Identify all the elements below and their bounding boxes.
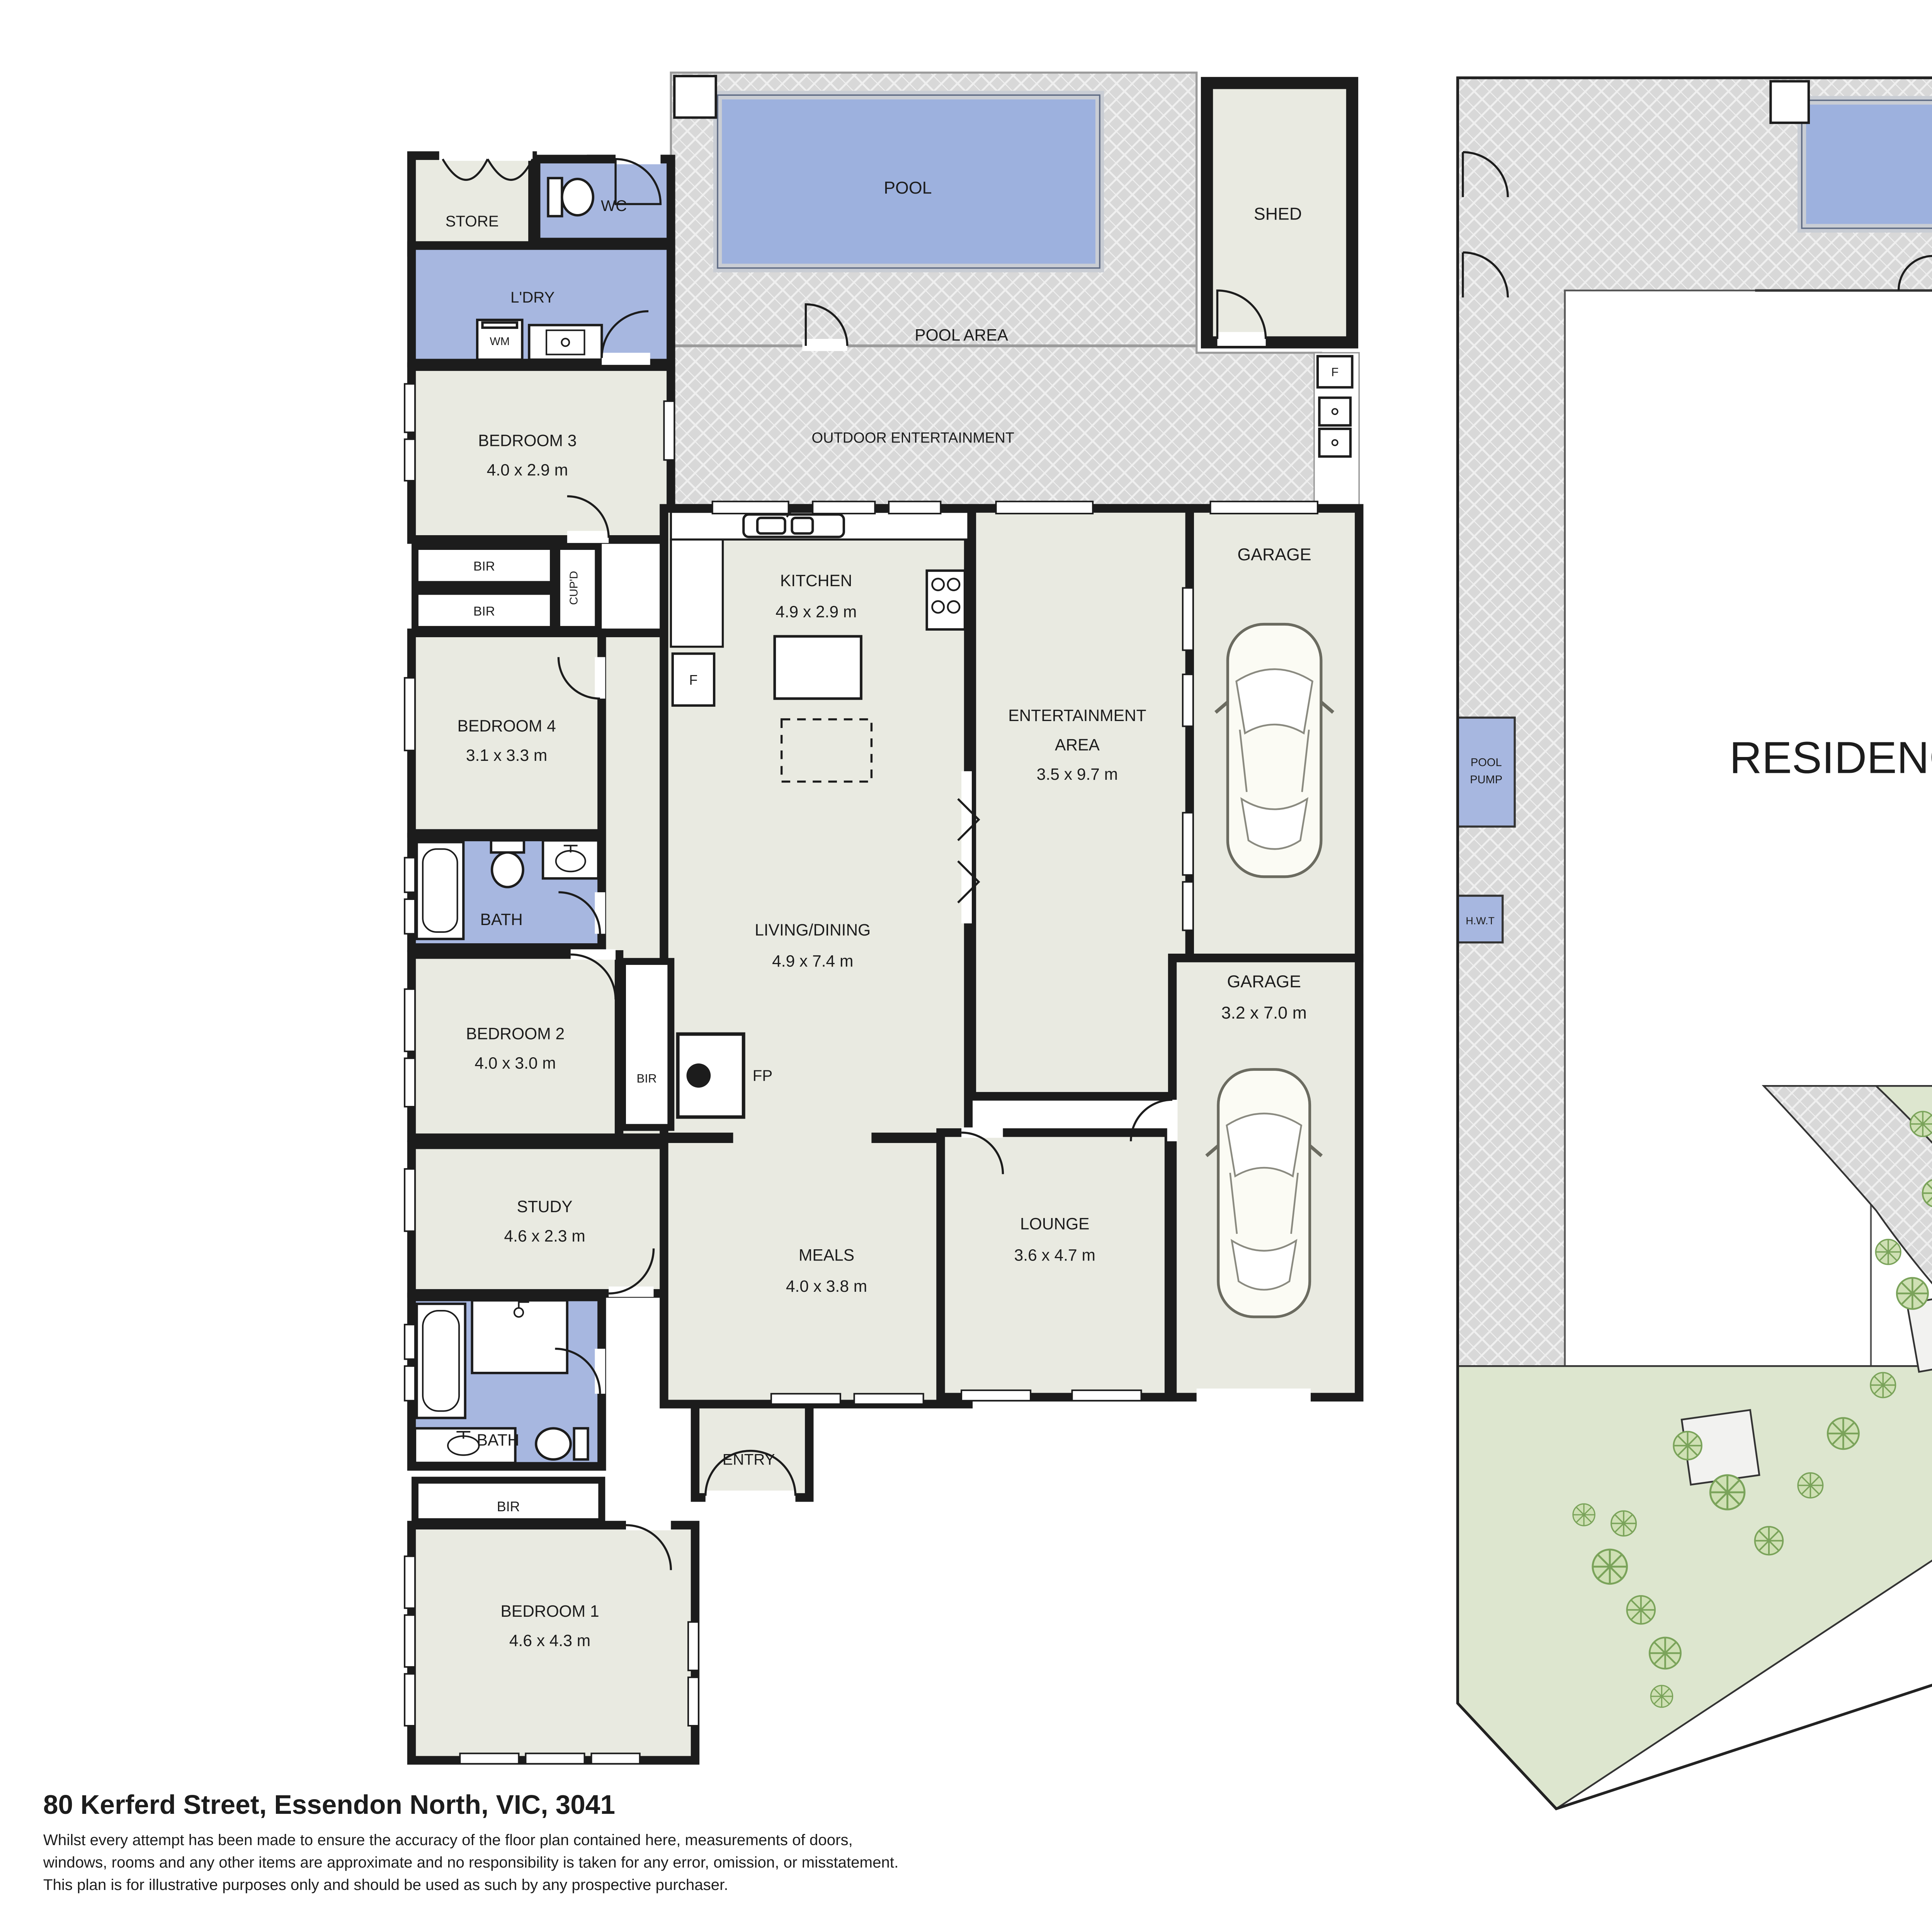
room-label-bedroom2: BEDROOM 2 [466,1025,565,1043]
room-label-entry: ENTRY [723,1451,775,1468]
room-label-fridge: F [689,672,698,688]
room-store [412,156,532,253]
disclaimer-line-1: Whilst every attempt has been made to en… [43,1831,853,1849]
room-label-entertainment: ENTERTAINMENT [1008,707,1146,725]
outdoor-appliance-icon [1319,398,1350,425]
room-label-kitchen: KITCHEN [780,572,852,590]
disclaimer-line-2: windows, rooms and any other items are a… [43,1854,898,1871]
site-plan: POOL SHED POOL AREA GARAGE GARAGE RESIDE… [1458,78,1932,1808]
room-label-bath2: BATH [477,1431,519,1449]
car-icon [1206,1070,1321,1317]
fireplace-icon [687,1063,711,1088]
room-label-cupd: CUP'D [568,571,580,605]
pool-label: POOL [884,178,932,197]
site-residence-label: RESIDENCE [1730,732,1932,782]
room-dims-kitchen: 4.9 x 2.9 m [776,603,857,621]
car-icon [1216,624,1333,876]
bir-box [622,961,671,1128]
kitchen-island [775,636,861,699]
room-label-laundry: L'DRY [510,289,554,306]
room-label-fp: FP [753,1067,772,1084]
room-dims-entertainment: 3.5 x 9.7 m [1037,765,1118,784]
room-label-garage2: GARAGE [1227,972,1301,991]
room-dims-bedroom3: 4.0 x 2.9 m [487,461,568,480]
room-label-garage1: GARAGE [1237,545,1311,564]
room-label-living: LIVING/DINING [755,921,871,939]
room-study [412,1145,678,1293]
room-label-wm: WM [490,335,510,348]
room-dims-study: 4.6 x 2.3 m [504,1227,585,1245]
pool-equipment-box [674,76,716,117]
floor-plan: POOL POOL AREA OUTDOOR ENTERTAINMENT SHE… [405,73,1359,1764]
disclaimer-line-3: This plan is for illustrative purposes o… [43,1876,728,1893]
bathtub-icon [417,1304,465,1418]
room-dims-living: 4.9 x 7.4 m [772,953,853,971]
vanity-icon [543,840,598,878]
room-label-meals: MEALS [799,1246,854,1264]
outdoor-fridge-label: F [1331,365,1338,379]
toilet-icon [548,178,593,216]
site-pool [1802,100,1932,228]
room-bedroom3 [412,367,671,539]
kitchen-counter-left [671,539,723,646]
shower-icon [472,1300,567,1373]
room-label-entertainment-area: AREA [1055,736,1100,754]
address-title: 80 Kerferd Street, Essendon North, VIC, … [43,1789,615,1820]
site-pool-equipment-box [1770,81,1808,122]
room-entertainment [972,509,1190,1096]
outdoor-appliance-icon [1319,429,1350,457]
laundry-sink-icon [529,325,602,359]
hwt-label: H.W.T [1466,915,1495,927]
pool-pump-label-2: PUMP [1470,774,1502,786]
outdoor-entertainment-label: OUTDOOR ENTERTAINMENT [812,430,1014,446]
room-dims-bedroom2: 4.0 x 3.0 m [474,1055,556,1073]
room-label-bir: BIR [473,560,495,574]
room-dims-meals: 4.0 x 3.8 m [786,1277,867,1296]
pool-area-label: POOL AREA [915,327,1008,345]
room-label-study: STUDY [517,1198,573,1216]
room-label-bedroom4: BEDROOM 4 [457,717,556,735]
shed-label: SHED [1254,204,1302,223]
room-label-bir: BIR [637,1072,657,1085]
room-dims-lounge: 3.6 x 4.7 m [1014,1246,1095,1264]
room-lounge [940,1133,1169,1397]
room-label-bir: BIR [473,604,495,619]
pool-pump-box [1458,718,1515,827]
pool-pump-label-1: POOL [1471,756,1502,769]
room-label-wc: WC [601,197,627,214]
room-dims-bedroom1: 4.6 x 4.3 m [509,1632,590,1650]
room-label-lounge: LOUNGE [1020,1215,1089,1233]
footer: 80 Kerferd Street, Essendon North, VIC, … [43,1789,898,1893]
room-label-bedroom3: BEDROOM 3 [478,432,577,450]
floorplan-page: POOL POOL AREA OUTDOOR ENTERTAINMENT SHE… [0,0,1932,1917]
stove-icon [927,571,965,629]
toilet-icon [536,1428,588,1459]
room-bedroom2 [412,954,619,1138]
room-label-bedroom1: BEDROOM 1 [501,1602,599,1621]
room-dims-bedroom4: 3.1 x 3.3 m [466,747,547,765]
room-label-bir: BIR [497,1499,520,1514]
toilet-icon [491,840,524,887]
room-dims-garage2: 3.2 x 7.0 m [1221,1003,1307,1022]
room-label-store: STORE [446,213,499,230]
bathtub-icon [417,842,463,939]
room-label-bath1: BATH [480,911,523,929]
